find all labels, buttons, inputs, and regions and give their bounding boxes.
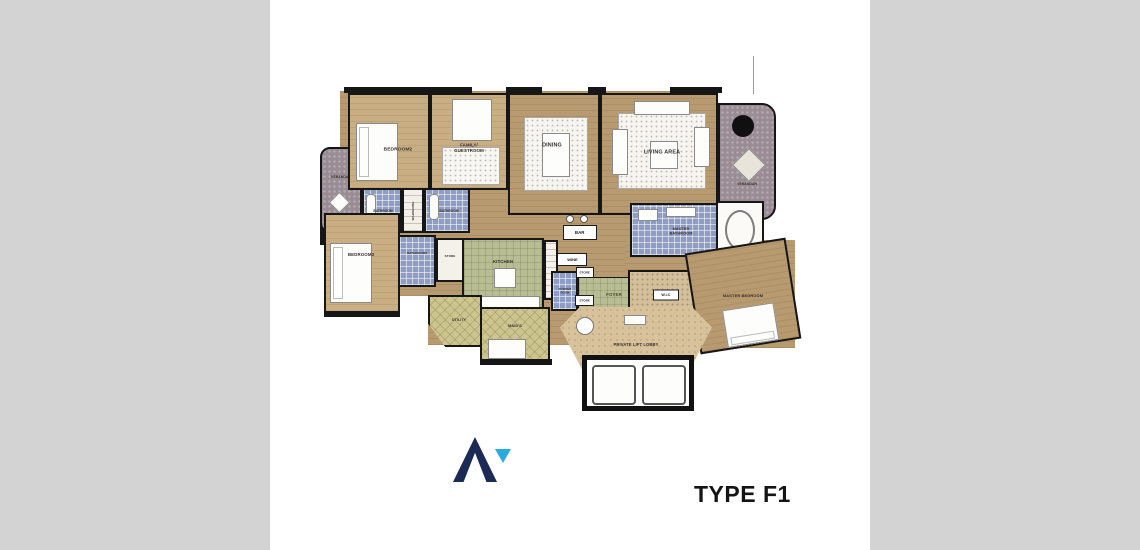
private-lift-lobby-label: PRIVATE LIFT LOBBY xyxy=(614,343,659,348)
bedroom3-label: BEDROOM3 xyxy=(347,253,373,258)
left-gray-panel xyxy=(0,0,270,550)
floor-plan: VERANDAH BEDROOM2 FAMILY/ GUESTROOM DINI… xyxy=(320,85,798,420)
sink xyxy=(638,209,658,221)
room-family-guestroom: FAMILY/ GUESTROOM xyxy=(430,93,508,190)
store-upper-label: STORE xyxy=(580,271,590,274)
lift-car xyxy=(592,365,636,405)
room-maids: MAID'S xyxy=(480,307,550,361)
store-lower: STORE xyxy=(575,295,594,306)
dining-table xyxy=(542,133,570,177)
bedroom2-label: BEDROOM2 xyxy=(384,146,413,152)
verandah-right-label: VERANDAH xyxy=(737,182,757,186)
room-bathroom3: BATHROOM3 xyxy=(398,235,436,287)
plan-type-title: TYPE F1 xyxy=(694,481,791,508)
floorplan-page: VERANDAH BEDROOM2 FAMILY/ GUESTROOM DINI… xyxy=(0,0,1140,550)
powder-room-label: POWDER ROOM xyxy=(558,288,571,295)
bar-counter: BAR xyxy=(563,225,597,240)
armchair xyxy=(694,127,710,167)
pillow xyxy=(359,127,369,177)
vanity xyxy=(666,207,696,217)
brand-logo-triangle-icon xyxy=(495,449,511,463)
kitchen-island xyxy=(494,268,516,288)
master-bathroom-label: MASTER BATHROOM xyxy=(669,226,692,235)
console-table xyxy=(624,315,646,325)
round-planter xyxy=(732,115,754,137)
bar-stool xyxy=(566,215,574,223)
wine-label: WINE xyxy=(567,257,577,262)
kitchen-label: KITCHEN xyxy=(493,259,513,264)
room-master-bathroom: MASTER BATHROOM xyxy=(630,203,718,257)
bathtub xyxy=(429,194,439,220)
wardrobe-label: WARDROBE xyxy=(411,201,415,220)
patio-table xyxy=(732,148,766,182)
bathroom-guestroom-label: BATHROOM xyxy=(439,209,458,213)
sofa-side xyxy=(612,129,628,175)
wine-store: WINE xyxy=(557,253,587,266)
room-wardrobe: WARDROBE xyxy=(402,188,424,233)
brand-logo-chevron-icon xyxy=(453,437,497,482)
dining-label: DINING xyxy=(542,141,562,148)
store-upper: STORE xyxy=(576,267,594,278)
utility-label: UTILITY xyxy=(452,318,466,322)
master-bedroom-label: MASTER BEDROOM xyxy=(723,294,763,299)
bar-label: BAR xyxy=(575,230,585,235)
room-store-main: STORE xyxy=(436,238,464,282)
room-powder: POWDER ROOM xyxy=(551,271,578,311)
sofa xyxy=(634,101,690,115)
lift-shafts xyxy=(582,355,694,411)
foyer-label: FOYER xyxy=(606,292,622,297)
bathroom3-label: BATHROOM3 xyxy=(407,251,427,255)
family-guestroom-label: FAMILY/ GUESTROOM xyxy=(454,143,484,154)
store-lower-label: STORE xyxy=(579,299,589,302)
living-area-label: LIVING AREA xyxy=(644,148,680,155)
room-dining: DINING xyxy=(508,93,600,215)
lift-car xyxy=(642,365,686,405)
bar-stool xyxy=(580,215,588,223)
pillow xyxy=(333,247,343,299)
patio-chair xyxy=(329,192,350,213)
bed xyxy=(452,99,492,141)
bathroom-bedroom2-label: BATHROOM xyxy=(374,209,393,213)
wic-box: W.I.C xyxy=(653,290,679,301)
room-bedroom2: BEDROOM2 xyxy=(348,93,430,190)
room-bedroom3: BEDROOM3 xyxy=(324,213,400,313)
right-gray-panel xyxy=(870,0,1140,550)
wic-label: W.I.C xyxy=(662,293,671,297)
room-living-area: LIVING AREA xyxy=(600,93,718,215)
maids-label: MAID'S xyxy=(508,324,522,329)
room-bathroom-guestroom: BATHROOM xyxy=(424,188,470,233)
store-main-label: STORE xyxy=(445,254,456,258)
round-table xyxy=(576,317,594,335)
bed xyxy=(488,339,526,359)
